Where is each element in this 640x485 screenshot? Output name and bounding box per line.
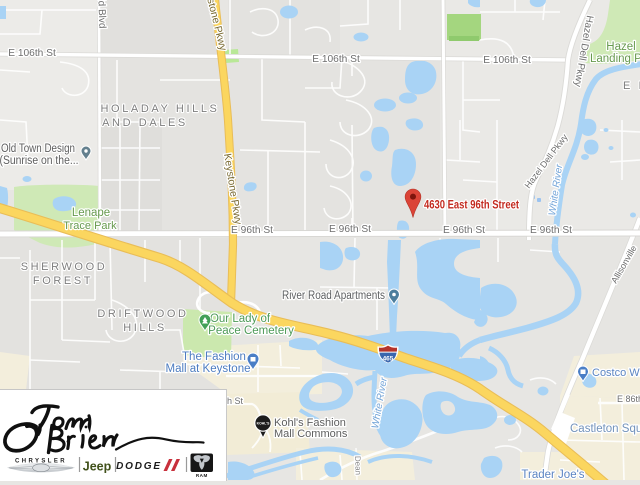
svg-text:Our Lady of: Our Lady of [210,313,271,325]
svg-text:RAM: RAM [196,473,208,478]
svg-text:E 106th St: E 106th St [8,48,56,59]
svg-text:Castleton Squa: Castleton Squa [570,423,640,435]
svg-text:DRIFTWOOD: DRIFTWOOD [97,308,188,320]
svg-text:E 96th St: E 96th St [443,225,485,236]
svg-text:E 106th St: E 106th St [483,55,531,66]
svg-text:E 96th St: E 96th St [329,224,371,235]
svg-text:E L: E L [623,80,640,92]
svg-text:Landing Park: Landing Park [590,53,640,65]
svg-text:DODGE: DODGE [116,461,162,472]
svg-text:465: 465 [383,356,394,363]
svg-text:Costco Who: Costco Who [592,367,640,379]
svg-text:River Road Apartments: River Road Apartments [282,290,385,302]
svg-text:E 86th: E 86th [617,394,640,404]
svg-text:Dean: Dean [353,456,363,475]
svg-text:Mall at Keystone: Mall at Keystone [165,363,250,375]
svg-text:Lenape: Lenape [72,207,110,219]
svg-text:field Blvd: field Blvd [95,0,107,29]
svg-text:4630 East 96th Street: 4630 East 96th Street [424,198,519,212]
svg-text:Mall Commons: Mall Commons [274,428,348,440]
svg-text:The Fashion: The Fashion [182,351,246,363]
svg-text:FOREST: FOREST [33,275,93,287]
svg-text:(Sunrise on the...: (Sunrise on the... [0,155,79,167]
svg-text:Trace Park: Trace Park [63,220,117,232]
svg-text:Peace Cemetery: Peace Cemetery [208,325,294,337]
svg-text:HILLS: HILLS [123,322,167,334]
svg-text:E 96th St: E 96th St [231,225,273,236]
svg-text:HOLADAY HILLS: HOLADAY HILLS [101,103,220,115]
svg-text:E 106th St: E 106th St [312,54,360,65]
svg-text:KOHL'S: KOHL'S [257,422,270,426]
svg-text:AND DALES: AND DALES [102,117,188,129]
svg-text:Jeep: Jeep [83,460,112,474]
svg-text:Hazel: Hazel [606,41,635,53]
svg-text:Trader Joe's: Trader Joe's [521,469,584,480]
svg-text:h St: h St [227,396,244,406]
svg-text:Old Town Design: Old Town Design [1,143,75,155]
svg-text:E 96th St: E 96th St [530,225,572,236]
svg-text:SHERWOOD: SHERWOOD [21,261,108,273]
